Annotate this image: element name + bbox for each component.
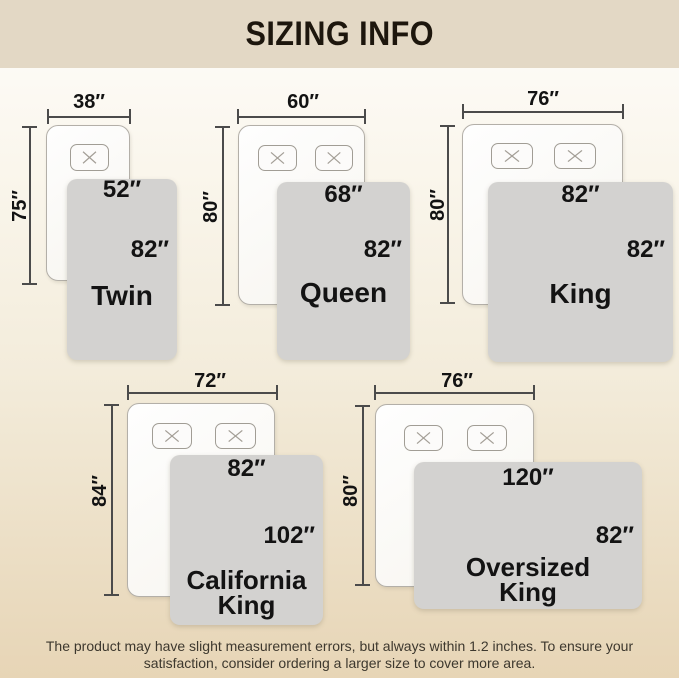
dimension-tick [374, 385, 376, 400]
size-name-label: California King [170, 568, 323, 618]
disclaimer-line-2: satisfaction, consider ordering a larger… [0, 655, 679, 672]
pillow [491, 143, 533, 169]
dimension-tick [104, 404, 119, 406]
dimension-tick [462, 104, 464, 119]
pillow [315, 145, 353, 171]
pillow-x-icon [71, 145, 108, 170]
pillow [404, 425, 443, 451]
blanket-height-label: 82″ [488, 236, 665, 264]
blanket-width-label: 82″ [170, 455, 323, 483]
dimension-tick [622, 104, 624, 119]
disclaimer-line-1: The product may have slight measurement … [0, 638, 679, 655]
size-name-text: California King [170, 568, 323, 618]
dimension-tick [215, 126, 230, 128]
blanket-width-label: 68″ [277, 181, 410, 209]
size-name-text: Oversized King [441, 555, 616, 605]
pillow-x-icon [216, 424, 255, 448]
dimension-tick [127, 385, 129, 400]
width-dimension-line [48, 116, 130, 118]
dimension-tick [215, 304, 230, 306]
blanket-width-label: 82″ [488, 181, 673, 209]
blanket-width-label: 120″ [414, 464, 642, 492]
pillow [70, 144, 109, 171]
dimension-tick [533, 385, 535, 400]
pillow [215, 423, 256, 449]
bed-height-label: 75″ [7, 166, 33, 246]
size-name-label: King [488, 279, 673, 309]
page-title: SIZING INFO [245, 15, 434, 54]
blanket-overlay [67, 179, 177, 360]
bed-height-label: 80″ [425, 165, 451, 245]
dimension-tick [129, 109, 131, 124]
sizing-info-page: { "header": { "title": "SIZING INFO" }, … [0, 0, 679, 678]
blanket-width-label: 52″ [67, 176, 177, 204]
blanket-height-label: 102″ [170, 522, 315, 550]
size-name-text: Twin [91, 281, 153, 311]
bed-height-label: 84″ [87, 451, 113, 531]
pillow-x-icon [405, 426, 442, 450]
pillow [152, 423, 192, 449]
size-name-text: Queen [300, 278, 387, 308]
dimension-tick [237, 109, 239, 124]
size-name-text: King [549, 279, 611, 309]
bed-height-label: 80″ [338, 451, 364, 531]
blanket-height-label: 82″ [277, 236, 402, 264]
dimension-tick [104, 594, 119, 596]
dimension-tick [440, 302, 455, 304]
bed-height-label: 80″ [198, 167, 224, 247]
size-name-label: Oversized King [414, 555, 642, 605]
size-name-label: Queen [277, 278, 410, 308]
pillow-x-icon [555, 144, 595, 168]
header-band: SIZING INFO [0, 0, 679, 68]
width-dimension-line [238, 116, 365, 118]
bed-width-label: 76″ [417, 368, 497, 394]
pillow-x-icon [316, 146, 352, 170]
size-name-label: Twin [67, 281, 177, 311]
bed-width-label: 76″ [503, 86, 583, 112]
pillow [258, 145, 297, 171]
dimension-tick [22, 283, 37, 285]
blanket-height-label: 82″ [414, 522, 634, 550]
dimension-tick [22, 126, 37, 128]
disclaimer: The product may have slight measurement … [0, 638, 679, 672]
blanket-height-label: 82″ [67, 236, 169, 264]
blanket-overlay [488, 182, 673, 362]
bed-width-label: 38″ [49, 89, 129, 115]
bed-width-label: 72″ [170, 368, 250, 394]
bed-width-label: 60″ [263, 89, 343, 115]
pillow-x-icon [259, 146, 296, 170]
pillow [554, 143, 596, 169]
pillow-x-icon [492, 144, 532, 168]
dimension-tick [355, 584, 370, 586]
dimension-tick [355, 405, 370, 407]
pillow-x-icon [468, 426, 506, 450]
pillow-x-icon [153, 424, 191, 448]
dimension-tick [364, 109, 366, 124]
dimension-tick [440, 125, 455, 127]
dimension-tick [276, 385, 278, 400]
pillow [467, 425, 507, 451]
